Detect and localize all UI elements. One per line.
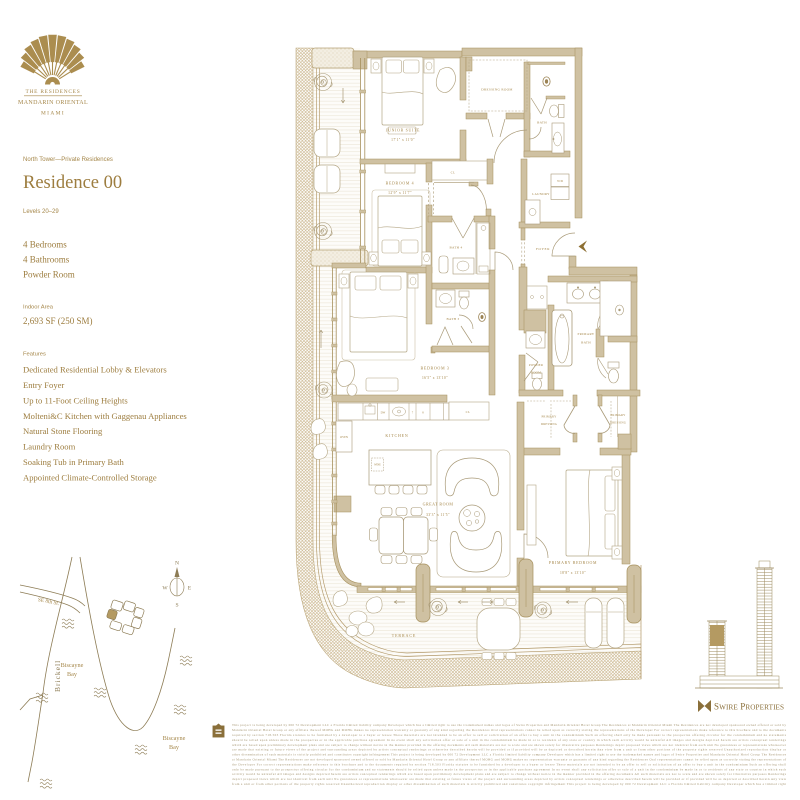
svg-text:4 Bedrooms: 4 Bedrooms [23,240,67,250]
svg-text:BEDROOM 3: BEDROOM 3 [421,366,450,371]
svg-text:KITCHEN: KITCHEN [385,433,408,438]
svg-text:LAUNDRY: LAUNDRY [532,192,550,196]
svg-text:PRIMARY BEDROOM: PRIMARY BEDROOM [549,561,597,565]
svg-text:WINE: WINE [374,464,381,467]
svg-text:DRESSING ROOM: DRESSING ROOM [481,88,513,92]
svg-text:POWDER: POWDER [529,363,544,367]
svg-text:E: E [188,586,192,592]
svg-text:BATH: BATH [581,341,591,345]
svg-text:Dedicated Residential Lobby &: Dedicated Residential Lobby & Elevators [23,365,167,375]
svg-text:Soaking Tub in Primary Bath: Soaking Tub in Primary Bath [23,457,124,467]
svg-text:TERRACE: TERRACE [392,633,417,638]
svg-text:Laundry Room: Laundry Room [23,442,76,452]
svg-text:GREAT ROOM: GREAT ROOM [423,502,454,507]
svg-text:PRIMARY: PRIMARY [611,413,627,417]
svg-text:Up to 11-Foot Ceiling Heights: Up to 11-Foot Ceiling Heights [23,395,128,405]
svg-text:33'3" x 11'5": 33'3" x 11'5" [426,513,450,517]
svg-text:17'1" x 11'0": 17'1" x 11'0" [391,138,415,142]
svg-text:FOYER: FOYER [536,247,550,251]
svg-text:DW: DW [381,412,386,415]
svg-text:the Developer For correct repr: the Developer For correct representation… [232,762,786,766]
svg-text:BATH 3: BATH 3 [447,317,460,321]
svg-text:Biscayne: Biscayne [61,662,84,669]
svg-text:18'8" x 13'10": 18'8" x 13'10" [560,571,586,575]
svg-text:Bay: Bay [67,671,78,678]
svg-text:are made that existing or futu: are made that existing or future views o… [232,748,787,752]
svg-text:W: W [162,586,168,592]
svg-text:CL: CL [451,171,456,175]
svg-text:OVEN: OVEN [340,435,349,439]
svg-text:required by section 718.503 Fl: required by section 718.503 Florida stat… [232,733,787,737]
svg-text:DRESSING: DRESSING [610,421,627,425]
svg-text:4 Bathrooms: 4 Bathrooms [23,255,70,265]
svg-text:JUNIOR SUITE: JUNIOR SUITE [386,129,420,133]
svg-text:DRESSING: DRESSING [541,422,558,426]
svg-text:North Tower—Private Residences: North Tower—Private Residences [23,157,113,163]
svg-text:16'5" x 13'10": 16'5" x 13'10" [422,376,448,380]
svg-text:other dissemination of such ma: other dissemination of such materials is… [232,753,787,757]
svg-text:Levels 20–29: Levels 20–29 [23,209,59,215]
svg-text:THE RESIDENCES: THE RESIDENCES [26,89,81,95]
svg-text:CL: CL [466,410,471,414]
svg-text:N: N [175,561,179,567]
svg-text:depict proposed views which ar: depict proposed views which are not iden… [232,777,787,781]
svg-text:Natural Stone Flooring: Natural Stone Flooring [23,426,103,436]
svg-text:W/D: W/D [557,179,564,183]
svg-text:SWIRE PROPERTIES: SWIRE PROPERTIES [714,702,784,712]
svg-text:only be made pursuant to the p: only be made pursuant to the prospectus … [232,767,786,771]
svg-text:12'9" x 11'7": 12'9" x 11'7" [388,191,412,195]
svg-text:BATH: BATH [537,121,547,125]
svg-text:Features: Features [23,352,46,358]
svg-text:PRIMARY: PRIMARY [578,332,595,336]
svg-text:S: S [175,603,178,609]
svg-text:MANDARIN ORIENTAL: MANDARIN ORIENTAL [18,100,88,106]
svg-text:at Mandarin Oriental Miami The: at Mandarin Oriental Miami The Residence… [232,758,787,762]
svg-text:MIAMI: MIAMI [41,111,65,117]
svg-text:Molteni&C Kitchen with Gaggena: Molteni&C Kitchen with Gaggenau Applianc… [23,411,187,421]
svg-text:BEDROOM 4: BEDROOM 4 [386,182,415,186]
svg-text:activity would be unlawful All: activity would be unlawful All images an… [232,772,787,776]
svg-text:should be relied upon unless m: should be relied upon unless made in the… [232,738,787,742]
svg-text:Entry Foyer: Entry Foyer [23,380,64,390]
svg-text:PRIMARY: PRIMARY [542,415,558,419]
svg-text:Indoor Area: Indoor Area [23,305,54,311]
svg-text:from a unit or from other port: from a unit or from other portions of th… [232,782,786,786]
svg-text:Residence 00: Residence 00 [23,173,122,193]
svg-text:Mandarin Oriental Hotel Group: Mandarin Oriental Hotel Group or any aff… [232,728,787,732]
svg-text:Biscayne: Biscayne [163,735,186,742]
svg-text:Bay: Bay [169,744,180,751]
svg-text:2,693 SF (250 SM): 2,693 SF (250 SM) [23,316,93,326]
svg-text:Appointed Climate-Controlled S: Appointed Climate-Controlled Storage [23,472,157,482]
svg-text:This project is being develope: This project is being developed by 000 7… [232,723,786,727]
svg-text:BATH 4: BATH 4 [450,246,463,250]
svg-text:ROOM: ROOM [531,371,541,375]
svg-text:Powder Room: Powder Room [23,270,75,280]
svg-text:which are based upon prelimina: which are based upon preliminary develop… [232,743,787,747]
